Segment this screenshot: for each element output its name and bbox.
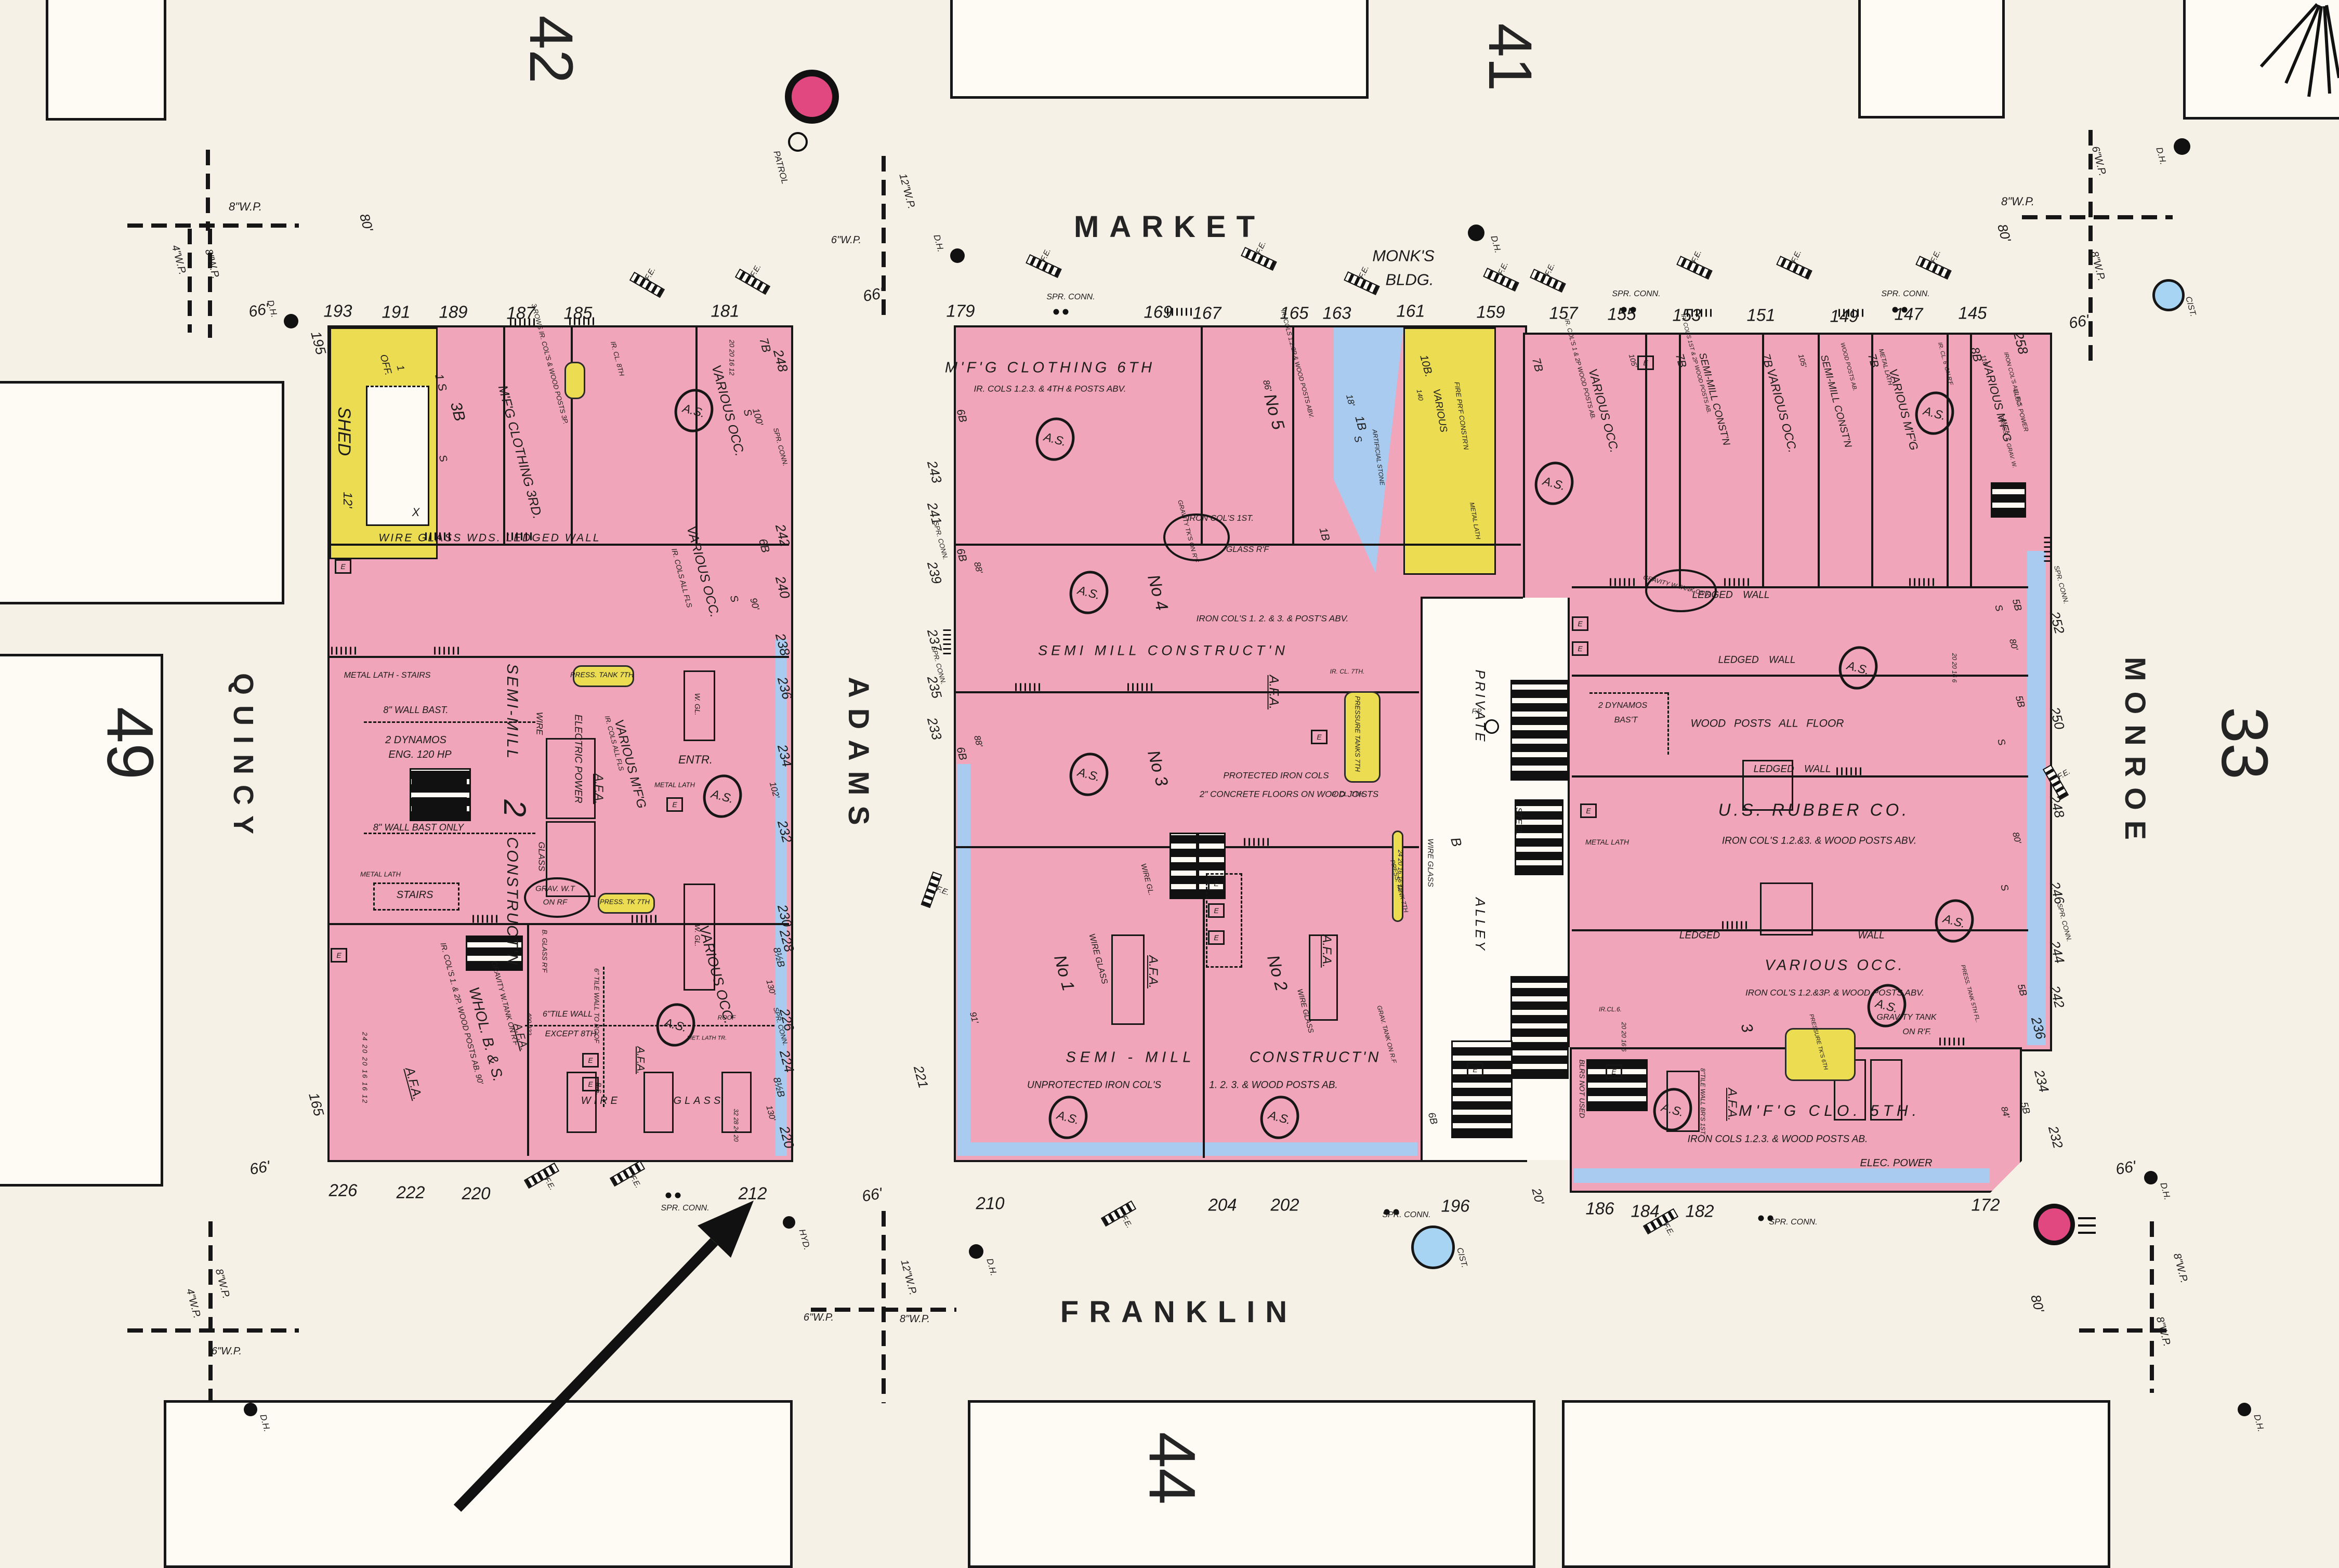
sanborn-map: 42 41 49 33 44 MARKET FRANKLIN ADAMS QUI… <box>0 0 2339 1547</box>
compass-starburst <box>0 0 2339 1547</box>
